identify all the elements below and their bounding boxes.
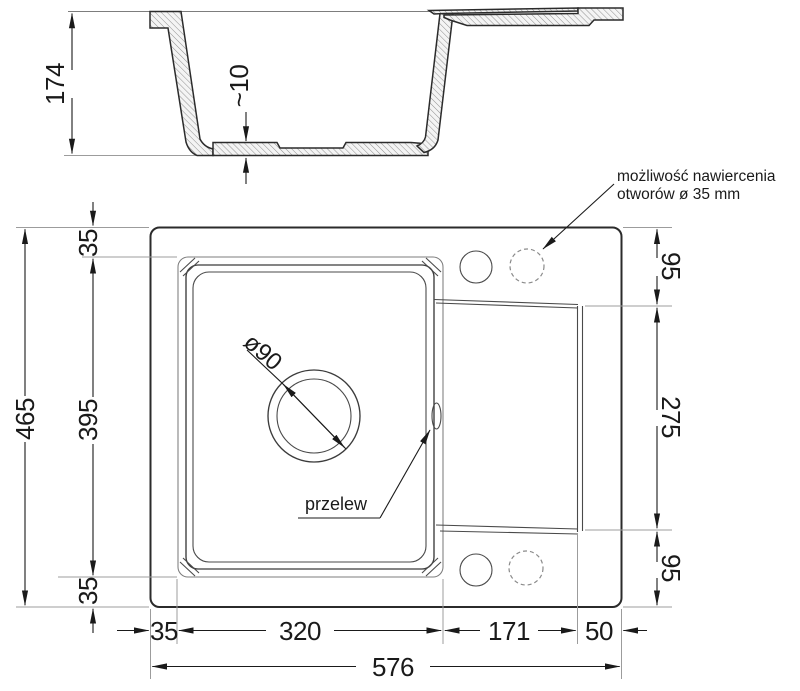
overflow-label: przelew bbox=[305, 494, 368, 514]
dim-label-edge-50: 50 bbox=[585, 616, 613, 646]
dim-label-right-top-95: 95 bbox=[656, 252, 686, 280]
dim-label-bowl-width-320: 320 bbox=[279, 616, 321, 646]
dim-chain-left: 35 395 35 465 bbox=[10, 202, 103, 633]
side-section-view: 174 ~10 bbox=[40, 8, 623, 184]
dim-label-bowl-length-395: 395 bbox=[73, 399, 103, 441]
dim-base-thickness: ~10 bbox=[224, 65, 254, 184]
dim-label-174: 174 bbox=[40, 63, 70, 105]
dim-section-height: 174 bbox=[40, 14, 72, 154]
section-right-wall bbox=[417, 14, 453, 153]
drill-note-line2: otworów ø 35 mm bbox=[617, 186, 740, 203]
sink-dimension-drawing: 174 ~10 bbox=[0, 0, 800, 691]
sink-outline bbox=[151, 228, 622, 608]
dim-label-total-height-465: 465 bbox=[10, 398, 40, 440]
dim-label-approx-10: ~10 bbox=[224, 65, 254, 108]
drawing-canvas: 174 ~10 bbox=[0, 0, 800, 691]
dim-label-right-middle-275: 275 bbox=[656, 396, 686, 438]
drill-note-line1: możliwość nawiercenia bbox=[617, 168, 776, 185]
dim-row-bottom: 35 320 171 50 576 bbox=[117, 616, 647, 682]
dim-label-drainer-171: 171 bbox=[488, 616, 530, 646]
dim-label-offset-bottom-35: 35 bbox=[73, 577, 103, 605]
dim-label-offset-top-35: 35 bbox=[73, 229, 103, 257]
dim-label-total-width-576: 576 bbox=[372, 652, 414, 682]
dim-chain-right: 95 275 95 bbox=[656, 229, 686, 605]
dim-label-offset-left-35: 35 bbox=[150, 616, 178, 646]
top-plan-view: ø90 przelew możliwość nawiercenia otworó… bbox=[151, 168, 776, 607]
section-bottom-slab bbox=[213, 143, 428, 156]
dim-label-right-bottom-95: 95 bbox=[656, 554, 686, 582]
section-left-wall bbox=[150, 12, 213, 156]
